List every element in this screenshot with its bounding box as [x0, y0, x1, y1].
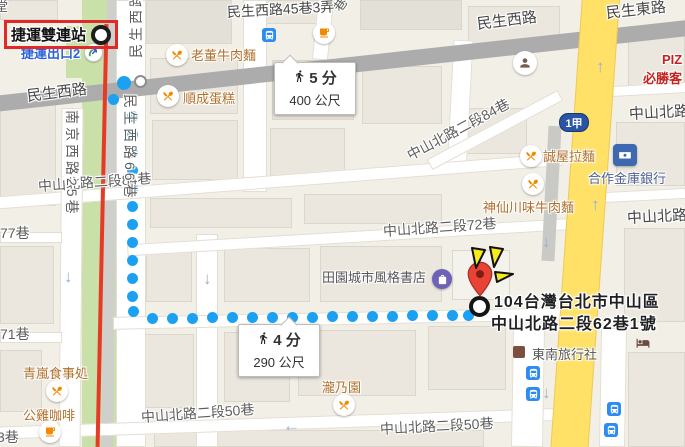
building: [146, 0, 232, 44]
oneway-arrow-icon: ↓: [542, 233, 551, 250]
poi-label[interactable]: 順成蛋糕: [183, 88, 235, 107]
oneway-arrow-icon: ↓: [542, 384, 551, 401]
route-dot: [367, 311, 378, 322]
route-dot: [307, 312, 318, 323]
poi-label[interactable]: 公雞咖啡: [23, 405, 75, 424]
walking-person-icon: [293, 69, 306, 87]
restaurant-icon[interactable]: [46, 380, 68, 402]
walk-distance: 400 公尺: [277, 90, 353, 109]
building: [0, 246, 54, 324]
poi-label[interactable]: 瀧乃園: [322, 377, 361, 396]
station-annotation-box: 捷運雙連站: [4, 20, 118, 49]
coffee-icon[interactable]: [313, 22, 335, 44]
building: [146, 252, 192, 302]
highway-shield-1jia: 1甲: [559, 113, 589, 132]
business-square-icon[interactable]: [513, 346, 525, 358]
route-dot: [447, 310, 458, 321]
restaurant-icon[interactable]: [520, 145, 542, 167]
poi-label[interactable]: 青嵐食事処: [23, 363, 88, 382]
route-dot: [327, 311, 338, 322]
walk-badge-5min[interactable]: 5 分 400 公尺: [274, 62, 356, 115]
metro-station-icon: [91, 25, 111, 45]
poi-label[interactable]: 老董牛肉麵: [191, 45, 256, 64]
oneway-arrow-icon: ↑: [591, 196, 600, 213]
route-dot: [128, 306, 139, 317]
bus-stop-icon[interactable]: [526, 387, 540, 401]
route-dot: [427, 310, 438, 321]
route-dot: [247, 312, 258, 323]
oneway-arrow-icon: ↑: [596, 58, 605, 75]
route-start-point: [134, 75, 147, 88]
building: [0, 0, 58, 20]
oneway-arrow-icon: ↓: [64, 268, 73, 285]
walk-distance: 290 公尺: [241, 352, 317, 371]
building: [152, 120, 238, 180]
route-dot: [127, 255, 138, 266]
street-label: 71巷: [0, 324, 30, 344]
walking-person-icon: [257, 331, 270, 349]
route-dot: [407, 310, 418, 321]
civic-office-icon[interactable]: [513, 51, 537, 75]
street: [602, 188, 685, 203]
poi-label[interactable]: PIZ: [662, 52, 682, 67]
street-label: 3巷: [0, 427, 19, 447]
street-label: 中山北路: [628, 100, 685, 124]
route-dot: [127, 273, 138, 284]
route-dot: [387, 311, 398, 322]
building: [270, 128, 345, 176]
bus-stop-icon[interactable]: [607, 402, 621, 416]
route-dot: [227, 312, 238, 323]
building: [428, 326, 506, 390]
building: [140, 334, 194, 408]
bus-stop-icon[interactable]: [604, 423, 618, 437]
poi-label[interactable]: 必勝客: [643, 68, 682, 87]
destination-address-line1: 104台灣台北市中山區: [494, 288, 660, 312]
hotel-icon[interactable]: [634, 336, 652, 350]
street-label-vertical: 民生西路66巷: [120, 94, 140, 201]
route-start-transit-dot: [117, 76, 131, 90]
highlight-burst-annotation: [455, 240, 535, 295]
building: [360, 0, 462, 30]
poi-label[interactable]: 合作金庫銀行: [588, 168, 666, 187]
poi-label[interactable]: 神仙川味牛肉麵: [483, 197, 574, 216]
bus-stop-icon[interactable]: [526, 366, 540, 380]
route-dot: [108, 94, 119, 105]
building: [362, 66, 442, 124]
route-dot: [127, 237, 138, 248]
map-canvas[interactable]: 1甲 5 分 400 公尺 4 分 290 公尺 104台灣台北市中山區: [0, 0, 685, 447]
street-label-vertical: 民生西路: [126, 0, 146, 58]
poi-label[interactable]: 田園城市風格書店: [322, 267, 426, 286]
oneway-arrow-icon: ↓: [203, 270, 212, 287]
bank-icon[interactable]: [613, 144, 637, 166]
street-label: 77巷: [0, 223, 30, 243]
restaurant-icon[interactable]: [166, 44, 188, 66]
station-label: 捷運雙連站: [11, 24, 86, 45]
restaurant-icon[interactable]: [522, 173, 544, 195]
street-label: 中山北路: [626, 204, 685, 228]
bus-stop-icon[interactable]: [262, 28, 276, 42]
walk-badge-4min[interactable]: 4 分 290 公尺: [238, 324, 320, 377]
building: [150, 198, 292, 228]
poi-label[interactable]: 東南旅行社: [532, 344, 597, 363]
street-label: 民生東路: [605, 0, 667, 23]
building: [224, 248, 310, 302]
route-dot: [347, 311, 358, 322]
street-label: 堂: [0, 0, 8, 15]
route-dot: [167, 313, 178, 324]
route-dot: [187, 313, 198, 324]
route-dot: [267, 312, 278, 323]
restaurant-icon[interactable]: [157, 85, 179, 107]
route-dot: [127, 291, 138, 302]
building: [628, 352, 685, 447]
route-dot: [127, 219, 138, 230]
poi-label[interactable]: 誠屋拉麵: [543, 146, 595, 165]
shopping-bag-icon[interactable]: [432, 269, 452, 289]
route-dot: [127, 201, 138, 212]
route-dot: [147, 313, 158, 324]
walk-time: 5 分: [309, 67, 337, 88]
street-label-vertical: 南京西路25巷: [62, 110, 82, 217]
restaurant-icon[interactable]: [333, 394, 355, 416]
destination-address-line2: 中山北路二段62巷1號: [491, 310, 657, 334]
oneway-arrow-icon: ←: [283, 417, 300, 434]
coffee-icon[interactable]: [39, 421, 61, 443]
route-dot: [207, 312, 218, 323]
